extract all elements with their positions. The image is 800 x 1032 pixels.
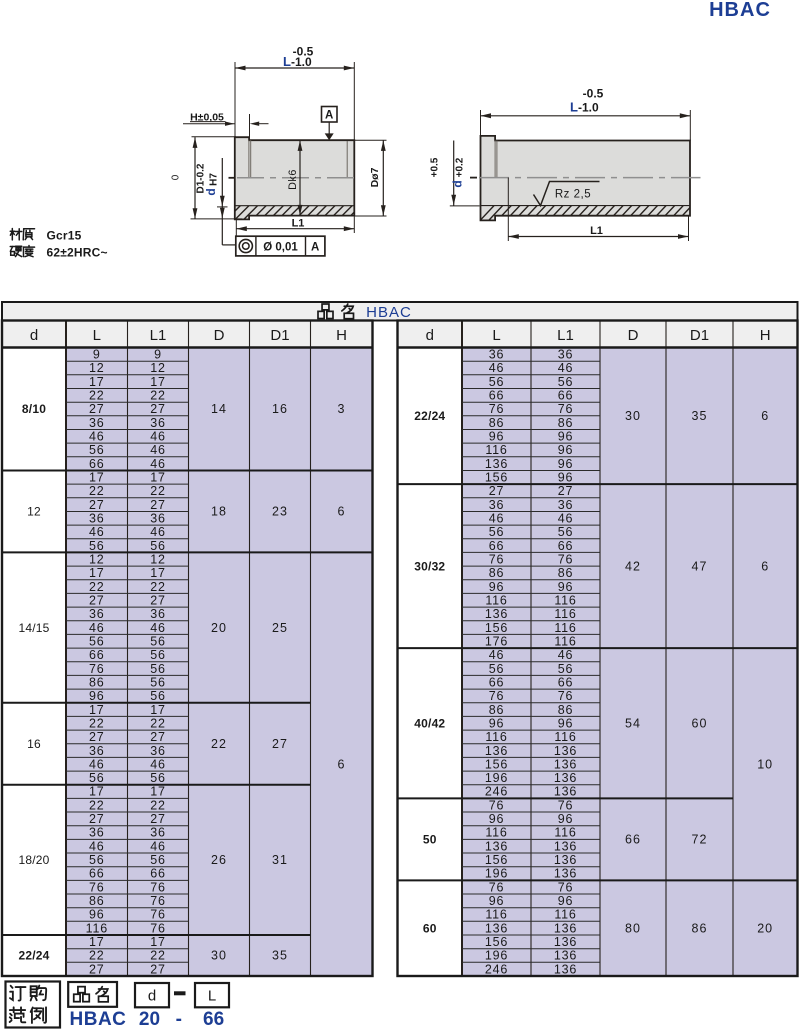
svg-text:17: 17: [150, 703, 166, 717]
svg-text:136: 136: [485, 457, 508, 471]
svg-text:46: 46: [489, 512, 505, 526]
svg-text:86: 86: [89, 894, 105, 908]
svg-text:136: 136: [554, 867, 577, 881]
svg-text:86: 86: [489, 416, 505, 430]
svg-text:56: 56: [150, 648, 166, 662]
svg-text:L1: L1: [292, 217, 305, 229]
svg-text:66: 66: [89, 648, 105, 662]
svg-text:40/42: 40/42: [414, 716, 445, 730]
svg-text:36: 36: [89, 512, 105, 526]
svg-text:96: 96: [558, 894, 574, 908]
svg-text:86: 86: [558, 416, 574, 430]
svg-text:36: 36: [89, 826, 105, 840]
svg-text:d: d: [148, 988, 156, 1005]
svg-text:22: 22: [89, 798, 105, 812]
svg-text:36: 36: [489, 348, 505, 362]
svg-text:22: 22: [89, 580, 105, 594]
svg-text:76: 76: [89, 880, 105, 894]
svg-text:116: 116: [485, 908, 507, 922]
svg-text:60: 60: [423, 921, 437, 935]
svg-text:18: 18: [211, 505, 227, 519]
svg-text:36: 36: [150, 826, 166, 840]
svg-text:-0.5: -0.5: [583, 87, 604, 101]
svg-text:96: 96: [89, 908, 105, 922]
svg-text:46: 46: [89, 757, 105, 771]
svg-text:46: 46: [89, 430, 105, 444]
svg-text:d: d: [426, 327, 434, 344]
svg-text:46: 46: [150, 839, 166, 853]
svg-text:56: 56: [489, 525, 505, 539]
svg-text:6: 6: [761, 559, 769, 573]
svg-text:76: 76: [558, 402, 574, 416]
svg-text:196: 196: [485, 949, 508, 963]
svg-text:17: 17: [150, 471, 166, 485]
svg-text:17: 17: [89, 935, 105, 949]
svg-text:L1: L1: [590, 225, 603, 237]
svg-text:46: 46: [558, 648, 574, 662]
svg-text:96: 96: [558, 812, 574, 826]
svg-text:27: 27: [272, 737, 288, 751]
svg-text:76: 76: [150, 894, 166, 908]
svg-text:76: 76: [558, 798, 574, 812]
svg-text:56: 56: [150, 853, 166, 867]
svg-text:56: 56: [89, 443, 105, 457]
svg-text:60: 60: [692, 716, 708, 730]
svg-text:27: 27: [150, 730, 166, 744]
svg-text:L-1.0: L-1.0: [283, 54, 312, 69]
svg-text:HBAC: HBAC: [70, 1009, 127, 1030]
svg-text:27: 27: [89, 812, 105, 826]
svg-text:36: 36: [89, 744, 105, 758]
svg-text:27: 27: [489, 484, 505, 498]
svg-text:116: 116: [554, 730, 576, 744]
svg-text:156: 156: [485, 757, 508, 771]
svg-text:36: 36: [150, 416, 166, 430]
svg-text:76: 76: [150, 908, 166, 922]
svg-text:72: 72: [692, 833, 708, 847]
svg-text:31: 31: [272, 853, 288, 867]
svg-text:156: 156: [485, 621, 508, 635]
svg-text:62±2HRC~: 62±2HRC~: [47, 245, 108, 259]
svg-text:96: 96: [558, 716, 574, 730]
svg-text:66: 66: [558, 389, 574, 403]
svg-text:L: L: [492, 327, 500, 344]
svg-text:30: 30: [625, 409, 641, 423]
svg-text:3: 3: [338, 402, 346, 416]
svg-text:66: 66: [558, 675, 574, 689]
svg-text:80: 80: [625, 921, 641, 935]
svg-text:+0.5: +0.5: [430, 157, 441, 177]
svg-text:116: 116: [554, 621, 576, 635]
svg-text:36: 36: [489, 498, 505, 512]
svg-text:66: 66: [89, 457, 105, 471]
svg-text:17: 17: [89, 785, 105, 799]
svg-text:66: 66: [203, 1009, 224, 1030]
svg-text:46: 46: [150, 443, 166, 457]
svg-text:56: 56: [89, 635, 105, 649]
svg-text:27: 27: [150, 402, 166, 416]
svg-text:46: 46: [150, 525, 166, 539]
svg-text:96: 96: [558, 443, 574, 457]
svg-text:17: 17: [150, 375, 166, 389]
svg-text:156: 156: [485, 935, 508, 949]
svg-text:17: 17: [150, 935, 166, 949]
svg-text:46: 46: [558, 512, 574, 526]
svg-text:Dk6: Dk6: [287, 169, 299, 190]
svg-text:17: 17: [150, 785, 166, 799]
svg-text:22: 22: [150, 949, 166, 963]
svg-text:86: 86: [89, 675, 105, 689]
svg-text:22: 22: [150, 389, 166, 403]
svg-text:46: 46: [150, 457, 166, 471]
svg-text:L-1.0: L-1.0: [570, 100, 599, 115]
svg-text:HBAC: HBAC: [709, 0, 771, 21]
svg-text:176: 176: [485, 635, 508, 649]
svg-text:12: 12: [150, 553, 166, 567]
svg-text:25: 25: [272, 621, 288, 635]
svg-text:136: 136: [554, 744, 577, 758]
svg-text:L: L: [208, 988, 216, 1005]
svg-text:136: 136: [485, 607, 508, 621]
svg-text:46: 46: [150, 430, 166, 444]
svg-text:D: D: [628, 327, 639, 344]
svg-text:L1: L1: [557, 327, 574, 344]
svg-text:136: 136: [485, 921, 508, 935]
svg-text:116: 116: [485, 826, 507, 840]
svg-text:50: 50: [423, 833, 437, 847]
svg-text:56: 56: [489, 662, 505, 676]
svg-text:76: 76: [150, 880, 166, 894]
svg-text:136: 136: [485, 839, 508, 853]
svg-text:9: 9: [154, 348, 162, 362]
svg-text:66: 66: [625, 833, 641, 847]
svg-text:36: 36: [89, 607, 105, 621]
svg-text:136: 136: [554, 839, 577, 853]
svg-text:116: 116: [554, 607, 576, 621]
svg-text:96: 96: [489, 430, 505, 444]
svg-text:66: 66: [489, 389, 505, 403]
svg-text:56: 56: [150, 771, 166, 785]
svg-text:116: 116: [485, 594, 507, 608]
svg-text:56: 56: [558, 375, 574, 389]
svg-text:27: 27: [150, 498, 166, 512]
svg-text:76: 76: [489, 798, 505, 812]
svg-text:96: 96: [89, 689, 105, 703]
svg-text:9: 9: [93, 348, 101, 362]
svg-text:136: 136: [554, 935, 577, 949]
svg-text:76: 76: [150, 921, 166, 935]
svg-text:47: 47: [692, 559, 708, 573]
svg-text:116: 116: [86, 921, 108, 935]
svg-text:20: 20: [139, 1009, 160, 1030]
svg-text:14/15: 14/15: [18, 621, 49, 635]
svg-text:136: 136: [554, 921, 577, 935]
svg-text:76: 76: [558, 689, 574, 703]
svg-text:66: 66: [150, 867, 166, 881]
svg-text:10: 10: [757, 758, 773, 772]
svg-text:46: 46: [89, 525, 105, 539]
svg-text:46: 46: [150, 621, 166, 635]
svg-text:8/10: 8/10: [22, 402, 46, 416]
svg-text:22/24: 22/24: [18, 949, 49, 963]
svg-text:27: 27: [150, 812, 166, 826]
svg-text:54: 54: [625, 716, 641, 730]
svg-text:246: 246: [485, 962, 508, 976]
svg-text:23: 23: [272, 505, 288, 519]
svg-text:12: 12: [27, 505, 41, 519]
svg-text:22: 22: [211, 737, 227, 751]
svg-text:-: -: [176, 1009, 182, 1030]
svg-text:22: 22: [89, 484, 105, 498]
svg-text:30/32: 30/32: [414, 559, 445, 573]
svg-text:27: 27: [150, 594, 166, 608]
svg-text:17: 17: [89, 703, 105, 717]
svg-text:36: 36: [150, 512, 166, 526]
svg-text:36: 36: [558, 498, 574, 512]
svg-text:Ø 0,01: Ø 0,01: [263, 242, 298, 254]
svg-text:36: 36: [150, 607, 166, 621]
svg-text:96: 96: [489, 894, 505, 908]
svg-text:Rz 2,5: Rz 2,5: [555, 189, 591, 201]
svg-text:27: 27: [89, 962, 105, 976]
svg-text:6: 6: [761, 409, 769, 423]
svg-text:46: 46: [89, 621, 105, 635]
svg-text:27: 27: [89, 594, 105, 608]
svg-text:22: 22: [89, 716, 105, 730]
svg-text:16: 16: [272, 402, 288, 416]
svg-text:136: 136: [554, 757, 577, 771]
svg-text:116: 116: [554, 826, 576, 840]
svg-text:56: 56: [558, 662, 574, 676]
svg-text:136: 136: [554, 949, 577, 963]
svg-text:27: 27: [558, 484, 574, 498]
svg-text:96: 96: [558, 471, 574, 485]
svg-text:H: H: [760, 327, 771, 344]
svg-text:d: d: [451, 180, 465, 187]
svg-text:27: 27: [89, 730, 105, 744]
svg-text:56: 56: [150, 689, 166, 703]
svg-text:116: 116: [485, 443, 507, 457]
svg-text:136: 136: [554, 785, 577, 799]
svg-text:76: 76: [89, 662, 105, 676]
svg-text:46: 46: [89, 839, 105, 853]
svg-text:HBAC: HBAC: [366, 304, 412, 321]
svg-text:A: A: [325, 110, 333, 122]
svg-text:22/24: 22/24: [414, 409, 445, 423]
svg-text:116: 116: [554, 635, 576, 649]
svg-text:116: 116: [554, 594, 576, 608]
svg-text:96: 96: [558, 580, 574, 594]
svg-text:136: 136: [554, 962, 577, 976]
svg-text:H: H: [336, 327, 347, 344]
svg-text:86: 86: [558, 703, 574, 717]
svg-text:46: 46: [489, 361, 505, 375]
svg-text:D1: D1: [270, 327, 289, 344]
svg-text:96: 96: [558, 430, 574, 444]
svg-text:76: 76: [489, 553, 505, 567]
svg-text:56: 56: [558, 525, 574, 539]
svg-text:26: 26: [211, 853, 227, 867]
svg-text:76: 76: [489, 880, 505, 894]
svg-text:76: 76: [558, 880, 574, 894]
svg-text:35: 35: [692, 409, 708, 423]
svg-text:22: 22: [150, 716, 166, 730]
svg-text:14: 14: [211, 402, 227, 416]
svg-text:L: L: [93, 327, 101, 344]
svg-text:H7: H7: [209, 173, 220, 186]
svg-text:56: 56: [489, 375, 505, 389]
svg-text:D: D: [214, 327, 225, 344]
svg-text:22: 22: [89, 949, 105, 963]
svg-text:17: 17: [89, 566, 105, 580]
svg-text:66: 66: [558, 539, 574, 553]
svg-text:66: 66: [489, 675, 505, 689]
svg-text:0: 0: [171, 174, 182, 180]
svg-text:46: 46: [558, 361, 574, 375]
svg-text:56: 56: [150, 662, 166, 676]
svg-text:A: A: [311, 242, 319, 254]
svg-text:156: 156: [485, 471, 508, 485]
svg-text:46: 46: [489, 648, 505, 662]
svg-text:+0.2: +0.2: [455, 157, 466, 177]
svg-text:136: 136: [554, 853, 577, 867]
svg-text:12: 12: [89, 553, 105, 567]
svg-text:96: 96: [489, 580, 505, 594]
svg-text:27: 27: [89, 498, 105, 512]
svg-text:16: 16: [27, 737, 41, 751]
svg-text:96: 96: [489, 812, 505, 826]
svg-text:36: 36: [558, 348, 574, 362]
svg-text:56: 56: [150, 635, 166, 649]
svg-text:156: 156: [485, 853, 508, 867]
svg-text:42: 42: [625, 559, 641, 573]
svg-text:d: d: [204, 188, 218, 195]
svg-text:96: 96: [558, 457, 574, 471]
svg-text:20: 20: [757, 921, 773, 935]
svg-text:86: 86: [489, 703, 505, 717]
svg-text:Dø7: Dø7: [369, 167, 381, 187]
svg-text:22: 22: [150, 484, 166, 498]
svg-text:136: 136: [485, 744, 508, 758]
svg-text:246: 246: [485, 785, 508, 799]
svg-text:66: 66: [489, 539, 505, 553]
svg-text:86: 86: [558, 566, 574, 580]
svg-text:35: 35: [272, 949, 288, 963]
svg-text:76: 76: [489, 689, 505, 703]
svg-text:20: 20: [211, 621, 227, 635]
svg-text:36: 36: [150, 744, 166, 758]
svg-text:Gcr15: Gcr15: [47, 228, 82, 242]
svg-text:27: 27: [89, 402, 105, 416]
svg-text:86: 86: [692, 921, 708, 935]
svg-text:56: 56: [89, 771, 105, 785]
svg-text:22: 22: [150, 580, 166, 594]
svg-text:12: 12: [150, 361, 166, 375]
svg-text:56: 56: [150, 675, 166, 689]
svg-text:6: 6: [338, 757, 346, 771]
svg-text:56: 56: [89, 539, 105, 553]
svg-text:56: 56: [89, 853, 105, 867]
svg-text:6: 6: [338, 505, 346, 519]
svg-text:22: 22: [150, 798, 166, 812]
svg-text:116: 116: [554, 908, 576, 922]
svg-text:96: 96: [489, 716, 505, 730]
svg-text:d: d: [30, 327, 38, 344]
svg-text:66: 66: [89, 867, 105, 881]
svg-text:18/20: 18/20: [18, 853, 49, 867]
svg-text:L1: L1: [150, 327, 167, 344]
svg-text:17: 17: [150, 566, 166, 580]
svg-text:D1: D1: [690, 327, 709, 344]
svg-text:12: 12: [89, 361, 105, 375]
svg-text:56: 56: [150, 539, 166, 553]
svg-text:17: 17: [89, 375, 105, 389]
svg-text:116: 116: [485, 730, 507, 744]
svg-text:86: 86: [489, 566, 505, 580]
svg-text:196: 196: [485, 771, 508, 785]
svg-text:76: 76: [558, 553, 574, 567]
svg-text:136: 136: [554, 771, 577, 785]
svg-text:27: 27: [150, 962, 166, 976]
svg-text:30: 30: [211, 949, 227, 963]
svg-text:36: 36: [89, 416, 105, 430]
svg-text:46: 46: [150, 757, 166, 771]
svg-text:22: 22: [89, 389, 105, 403]
svg-text:17: 17: [89, 471, 105, 485]
svg-text:76: 76: [489, 402, 505, 416]
svg-text:196: 196: [485, 867, 508, 881]
